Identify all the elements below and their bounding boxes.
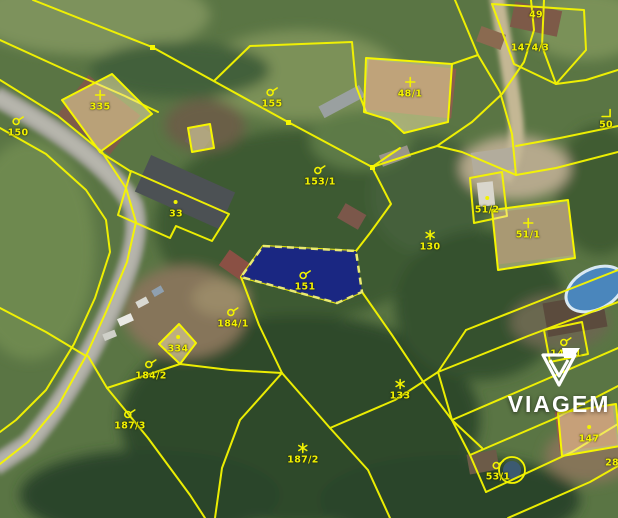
selected-parcel-151[interactable]: [241, 246, 362, 303]
cadastral-map-viewport[interactable]: 15033533155153/148/1491474/35051/251/113…: [0, 0, 618, 518]
cadastral-overlay-layer: [0, 0, 618, 518]
